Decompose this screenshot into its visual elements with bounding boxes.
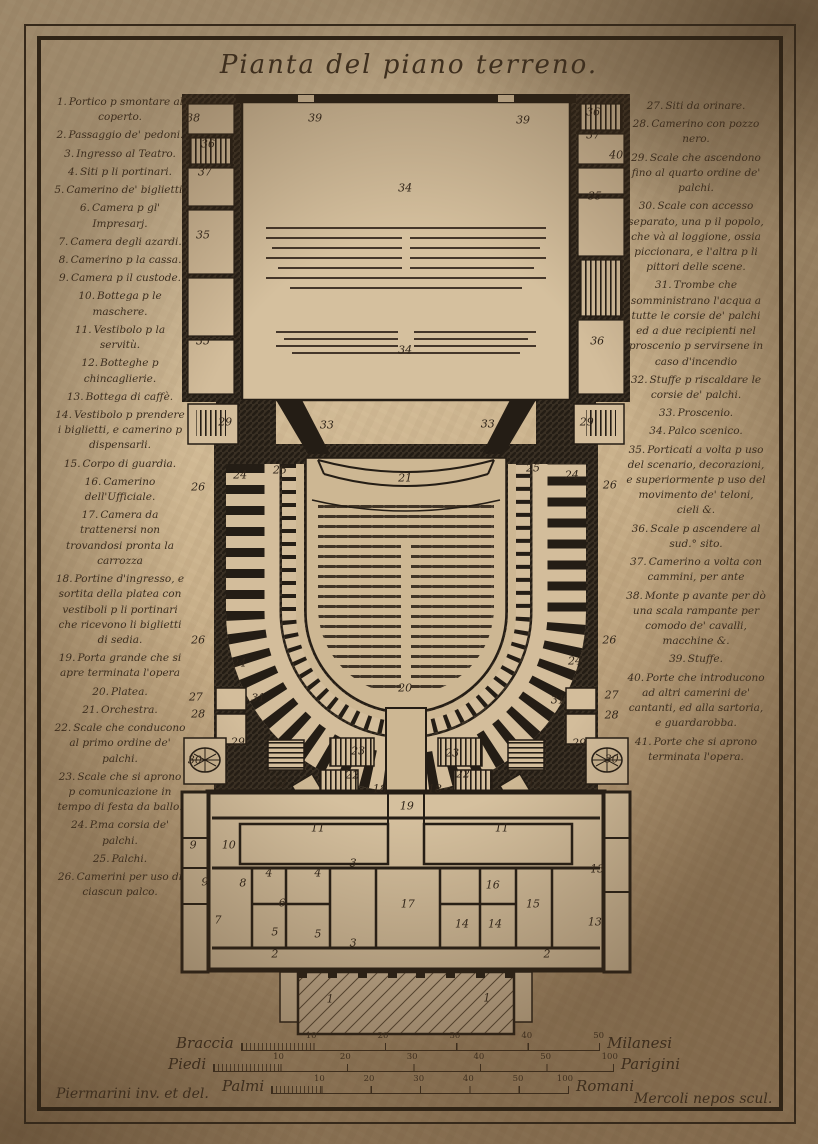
plan-room-number: 13 (588, 915, 602, 928)
legend-item: 24.P.ma corsia de' palchi. (54, 818, 186, 848)
scale-tick-number: 50 (532, 1031, 604, 1041)
plan-room-number: 28 (605, 708, 619, 721)
plan-room-number: 30 (188, 754, 202, 767)
scale-tick-number: 10 (245, 1031, 317, 1041)
plan-room-number: 24 (568, 654, 582, 667)
legend-item: 15.Corpo di guardia. (54, 457, 186, 472)
plan-room-number: 29 (572, 737, 586, 750)
legend-item: 18.Portine d'ingresso, e sortita della p… (54, 572, 186, 648)
legend-item: 32.Stuffe p riscaldare le corsie de' pal… (626, 373, 766, 403)
legend-item: 26.Camerini per uso di ciascun palco. (54, 870, 186, 900)
scale-tick-number: 20 (317, 1031, 389, 1041)
plan-room-number: 36 (201, 137, 215, 150)
plan-room-number: 19 (400, 800, 414, 813)
scale-piedi: Piedi 1020304050100 Parigini (168, 1054, 680, 1072)
architect-credit: Piermarini inv. et del. (56, 1086, 209, 1102)
plan-room-number: 5 (271, 926, 278, 939)
plan-room-number: 4 (314, 866, 321, 879)
plan-room-number: 11 (311, 822, 325, 835)
legend-item: 17.Camera da trattenersi non trovandosi … (54, 508, 186, 569)
plan-room-number: 3 (350, 857, 357, 870)
plan-room-number: 22 (456, 768, 470, 781)
plan-room-number: 30 (605, 753, 619, 766)
plan-room-number: 29 (231, 736, 245, 749)
legend-item: 11.Vestibolo p la servitù. (54, 323, 186, 353)
plan-room-number: 3 (350, 936, 357, 949)
legend-item: 39.Stuffe. (626, 652, 766, 667)
plan-room-number: 28 (191, 707, 205, 720)
legend-right-column: 27.Siti da orinare.28.Camerino con pozzo… (626, 99, 766, 768)
plan-room-number: 26 (191, 634, 205, 647)
theatre-floor-plan: 3836373535393934343637403536333329292125… (180, 92, 632, 1037)
plan-room-number: 9 (201, 876, 208, 889)
legend-item: 1.Portico p smontare al coperto. (54, 95, 186, 125)
scale-tick-number: 40 (418, 1052, 485, 1062)
plan-room-number: 12 (528, 776, 542, 789)
legend-item: 25.Palchi. (54, 852, 186, 867)
legend-item: 38.Monte p avante per dò una scala rampa… (626, 589, 766, 650)
plan-room-number: 13 (590, 862, 604, 875)
plan-room-number: 15 (526, 897, 540, 910)
legend-item: 19.Porta grande che si apre terminata l'… (54, 651, 186, 681)
legend-item: 33.Proscenio. (626, 406, 766, 421)
legend-item: 16.Camerino dell'Ufficiale. (54, 475, 186, 505)
plan-room-number: 34 (398, 343, 412, 356)
plan-room-numbers: 3836373535393934343637403536333329292125… (180, 92, 632, 1037)
plan-room-number: 39 (516, 114, 530, 127)
legend-item: 7.Camera degli azardi. (54, 235, 186, 250)
legend-item: 28.Camerino con pozzo nero. (626, 117, 766, 147)
legend-item: 36.Scale p ascendere al sud.° sito. (626, 522, 766, 552)
plan-room-number: 2 (544, 947, 551, 960)
plan-room-number: 6 (279, 896, 286, 909)
legend-item: 40.Porte che introducono ad altri cameri… (626, 671, 766, 732)
legend-item: 23.Scale che si aprono p comunicazione i… (54, 770, 186, 816)
legend-item: 3.Ingresso al Teatro. (54, 147, 186, 162)
scale-name: Palmi (222, 1079, 264, 1094)
plan-room-number: 26 (602, 634, 616, 647)
engraving-photo-page: Pianta del piano terreno. 1.Portico p sm… (0, 0, 818, 1144)
plan-room-number: 40 (609, 149, 623, 162)
plan-room-number: 4 (266, 866, 273, 879)
legend-item: 13.Bottega di caffè. (54, 390, 186, 405)
plan-room-number: 26 (191, 481, 205, 494)
legend-item: 6.Camera p gl' Impresarj. (54, 201, 186, 231)
plan-room-number: 10 (222, 839, 236, 852)
scale-unit: Milanesi (607, 1036, 672, 1051)
legend-item: 4.Siti p li portinari. (54, 165, 186, 180)
scale-tick-number: 30 (351, 1052, 418, 1062)
plan-room-number: 33 (481, 417, 495, 430)
plan-room-number: 27 (189, 690, 203, 703)
legend-item: 27.Siti da orinare. (626, 99, 766, 114)
scale-tick-number: 10 (217, 1052, 284, 1062)
plan-room-number: 36 (586, 105, 600, 118)
plan-room-number: 11 (495, 822, 509, 835)
scale-tick-number: 30 (388, 1031, 460, 1041)
scale-palmi: Palmi 1020304050100 Romani (222, 1076, 634, 1094)
plan-room-number: 24 (565, 468, 579, 481)
legend-item: 8.Camerino p la cassa. (54, 253, 186, 268)
scale-braccia: Braccia 1020304050 Milanesi (176, 1033, 672, 1051)
plan-room-number: 8 (239, 876, 246, 889)
legend-item: 37.Camerino a volta con cammini, per ant… (626, 555, 766, 585)
plan-room-number: 39 (308, 112, 322, 125)
plan-room-number: 26 (603, 479, 617, 492)
plan-room-number: 37 (198, 166, 212, 179)
page-title: Pianta del piano terreno. (0, 50, 818, 80)
plan-room-number: 27 (605, 688, 619, 701)
plan-room-number: 14 (455, 917, 469, 930)
scale-tick-number: 20 (325, 1074, 375, 1084)
plan-room-number: 29 (580, 415, 594, 428)
legend-item: 10.Bottega p le maschere. (54, 289, 186, 319)
scale-unit: Parigini (621, 1057, 680, 1072)
scale-ruler: 1020304050 (241, 1033, 600, 1051)
plan-room-number: 16 (486, 878, 500, 891)
legend-item: 12.Botteghe p chincaglierie. (54, 356, 186, 386)
scale-tick-number: 30 (374, 1074, 424, 1084)
plan-room-number: 36 (590, 334, 604, 347)
scale-name: Piedi (168, 1057, 206, 1072)
scale-tick-number: 10 (275, 1074, 325, 1084)
legend-item: 20.Platea. (54, 685, 186, 700)
legend-item: 14.Vestibolo p prendere i biglietti, e c… (54, 408, 186, 454)
legend-item: 9.Camera p il custode. (54, 271, 186, 286)
legend-item: 30.Scale con accesso separato, una p il … (626, 199, 766, 275)
plan-room-number: 24 (232, 656, 246, 669)
plan-room-number: 25 (526, 462, 540, 475)
plan-room-number: 29 (218, 415, 232, 428)
scale-tick-number: 50 (474, 1074, 524, 1084)
scale-tick-number: 100 (523, 1074, 573, 1084)
plan-room-number: 12 (273, 776, 287, 789)
plan-room-number: 35 (588, 189, 602, 202)
plan-room-number: 35 (196, 228, 210, 241)
plan-room-number: 31 (551, 693, 565, 706)
scale-unit: Romani (576, 1079, 634, 1094)
plan-room-number: 14 (488, 917, 502, 930)
plan-room-number: 9 (190, 839, 197, 852)
scale-ruler: 1020304050100 (271, 1076, 569, 1094)
legend-left-column: 1.Portico p smontare al coperto.2.Passag… (54, 95, 186, 904)
plan-room-number: 23 (445, 746, 459, 759)
plan-room-number: 20 (398, 682, 412, 695)
plan-room-number: 33 (320, 418, 334, 431)
legend-item: 22.Scale che conducono al primo ordine d… (54, 721, 186, 767)
legend-item: 31.Trombe che somministrano l'acqua a tu… (626, 278, 766, 369)
plan-room-number: 5 (314, 927, 321, 940)
scale-tick-number: 20 (284, 1052, 351, 1062)
scale-tick-number: 40 (460, 1031, 532, 1041)
plan-room-number: 2 (271, 947, 278, 960)
plan-room-number: 34 (398, 182, 412, 195)
plan-room-number: 25 (273, 464, 287, 477)
scale-tick-number: 100 (551, 1052, 618, 1062)
plan-room-number: 35 (196, 334, 210, 347)
plan-room-number: 37 (586, 129, 600, 142)
plan-room-number: 22 (345, 769, 359, 782)
plan-room-number: 7 (214, 913, 221, 926)
legend-item: 2.Passaggio de' pedoni. (54, 128, 186, 143)
plan-room-number: 18 (428, 783, 442, 796)
plan-room-number: 17 (401, 897, 415, 910)
plan-room-number: 31 (251, 691, 265, 704)
scale-name: Braccia (176, 1036, 234, 1051)
plan-room-number: 24 (233, 468, 247, 481)
plan-room-number: 21 (398, 471, 412, 484)
plan-room-number: 1 (483, 992, 490, 1005)
legend-item: 34.Palco scenico. (626, 424, 766, 439)
scale-tick-number: 40 (424, 1074, 474, 1084)
scale-tick-number: 50 (484, 1052, 551, 1062)
engraver-credit: Mercoli nepos scul. (634, 1091, 772, 1107)
legend-item: 21.Orchestra. (54, 703, 186, 718)
plan-room-number: 38 (186, 112, 200, 125)
legend-item: 41.Porte che si aprono terminata l'opera… (626, 735, 766, 765)
plan-room-number: 1 (327, 993, 334, 1006)
legend-item: 35.Porticati a volta p uso del scenario,… (626, 443, 766, 519)
legend-item: 29.Scale che ascendono fino al quarto or… (626, 151, 766, 197)
legend-item: 5.Camerino de' biglietti. (54, 183, 186, 198)
plan-room-number: 18 (373, 783, 387, 796)
plan-room-number: 23 (351, 744, 365, 757)
scale-ruler: 1020304050100 (213, 1054, 614, 1072)
